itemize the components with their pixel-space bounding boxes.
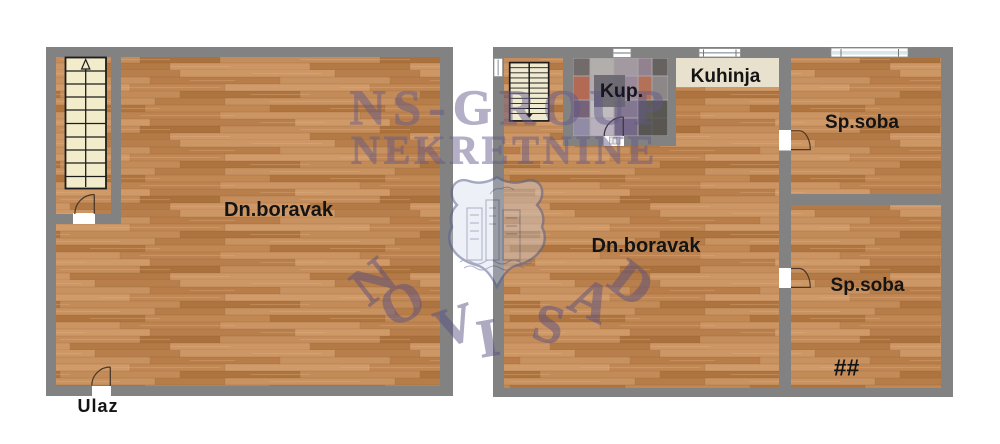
svg-text:Dn.boravak: Dn.boravak	[224, 199, 334, 221]
svg-text:Ulaz: Ulaz	[77, 396, 118, 416]
svg-text:Kup.: Kup.	[600, 80, 643, 102]
svg-text:NEKRETNINE: NEKRETNINE	[351, 128, 658, 173]
svg-text:Kuhinja: Kuhinja	[691, 66, 761, 87]
svg-text:Sp.soba: Sp.soba	[825, 112, 899, 133]
svg-text:Dn.boravak: Dn.boravak	[592, 235, 702, 257]
svg-text:Sp.soba: Sp.soba	[831, 275, 905, 296]
svg-text:##: ##	[834, 355, 860, 381]
